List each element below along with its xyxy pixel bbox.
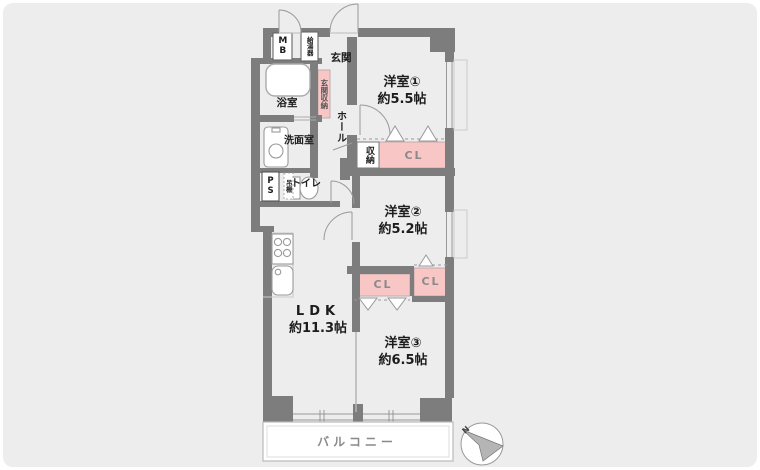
washroom-label: 洗面室 xyxy=(284,135,314,148)
stove-burner-icon xyxy=(283,249,290,256)
bedroom2-size: 約5.2帖 xyxy=(378,222,427,239)
mb-door-arc xyxy=(279,10,301,32)
balcony-label: バルコニー xyxy=(317,435,397,451)
bedroom3-label: 洋室③ 約6.5帖 xyxy=(378,336,427,370)
stove-burner-icon xyxy=(274,238,281,245)
closet1-label: CL xyxy=(404,149,423,163)
ldk-name: LDK xyxy=(289,304,347,321)
bedroom2-label: 洋室② 約5.2帖 xyxy=(378,205,427,239)
bedroom1-label: 洋室① 約5.5帖 xyxy=(377,75,426,109)
bedroom1-size: 約5.5帖 xyxy=(377,92,426,109)
hall-storage-label: 収納 xyxy=(362,146,374,164)
bedroom3-name: 洋室③ xyxy=(378,336,427,353)
ldk-label: LDK 約11.3帖 xyxy=(289,304,347,338)
pipe-space-label: PS xyxy=(264,176,275,196)
washbasin-bowl-icon xyxy=(269,144,283,158)
sink-faucet-icon xyxy=(275,269,281,275)
closet2-label: CL xyxy=(373,278,392,292)
bedroom2-window xyxy=(447,212,453,257)
entry-storage-label: 玄関収納 xyxy=(319,79,329,109)
bathtub-icon xyxy=(266,64,310,96)
stove-burner-icon xyxy=(283,238,290,245)
toilet-shelf-label: 吊棚 xyxy=(284,180,292,193)
ldk-size: 約11.3帖 xyxy=(289,321,347,338)
hall-label: ホール xyxy=(334,111,347,144)
washbasin-faucet-icon xyxy=(272,128,280,132)
entrance-label: 玄関 xyxy=(331,52,352,66)
water-heater-label: 給湯器 xyxy=(305,36,313,56)
stove-burner-icon xyxy=(274,249,281,256)
stove-icon xyxy=(272,234,293,264)
bedroom2-window-sill xyxy=(454,210,467,258)
bedroom1-window-sill xyxy=(454,60,467,130)
bedroom2-name: 洋室② xyxy=(378,205,427,222)
meter-box-label: MB xyxy=(276,36,288,56)
closet3-label: CL xyxy=(421,275,440,289)
entrance-door-arc xyxy=(330,4,358,32)
bedroom1-window xyxy=(447,62,453,128)
bedroom3-size: 約6.5帖 xyxy=(378,353,427,370)
toilet-label: トイレ xyxy=(291,178,321,191)
bathroom-label: 浴室 xyxy=(277,97,298,111)
floor-plan-image: 洋室① 約5.5帖 洋室② 約5.2帖 洋室③ 約6.5帖 LDK 約11.3帖… xyxy=(0,0,760,470)
bedroom1-name: 洋室① xyxy=(377,75,426,92)
